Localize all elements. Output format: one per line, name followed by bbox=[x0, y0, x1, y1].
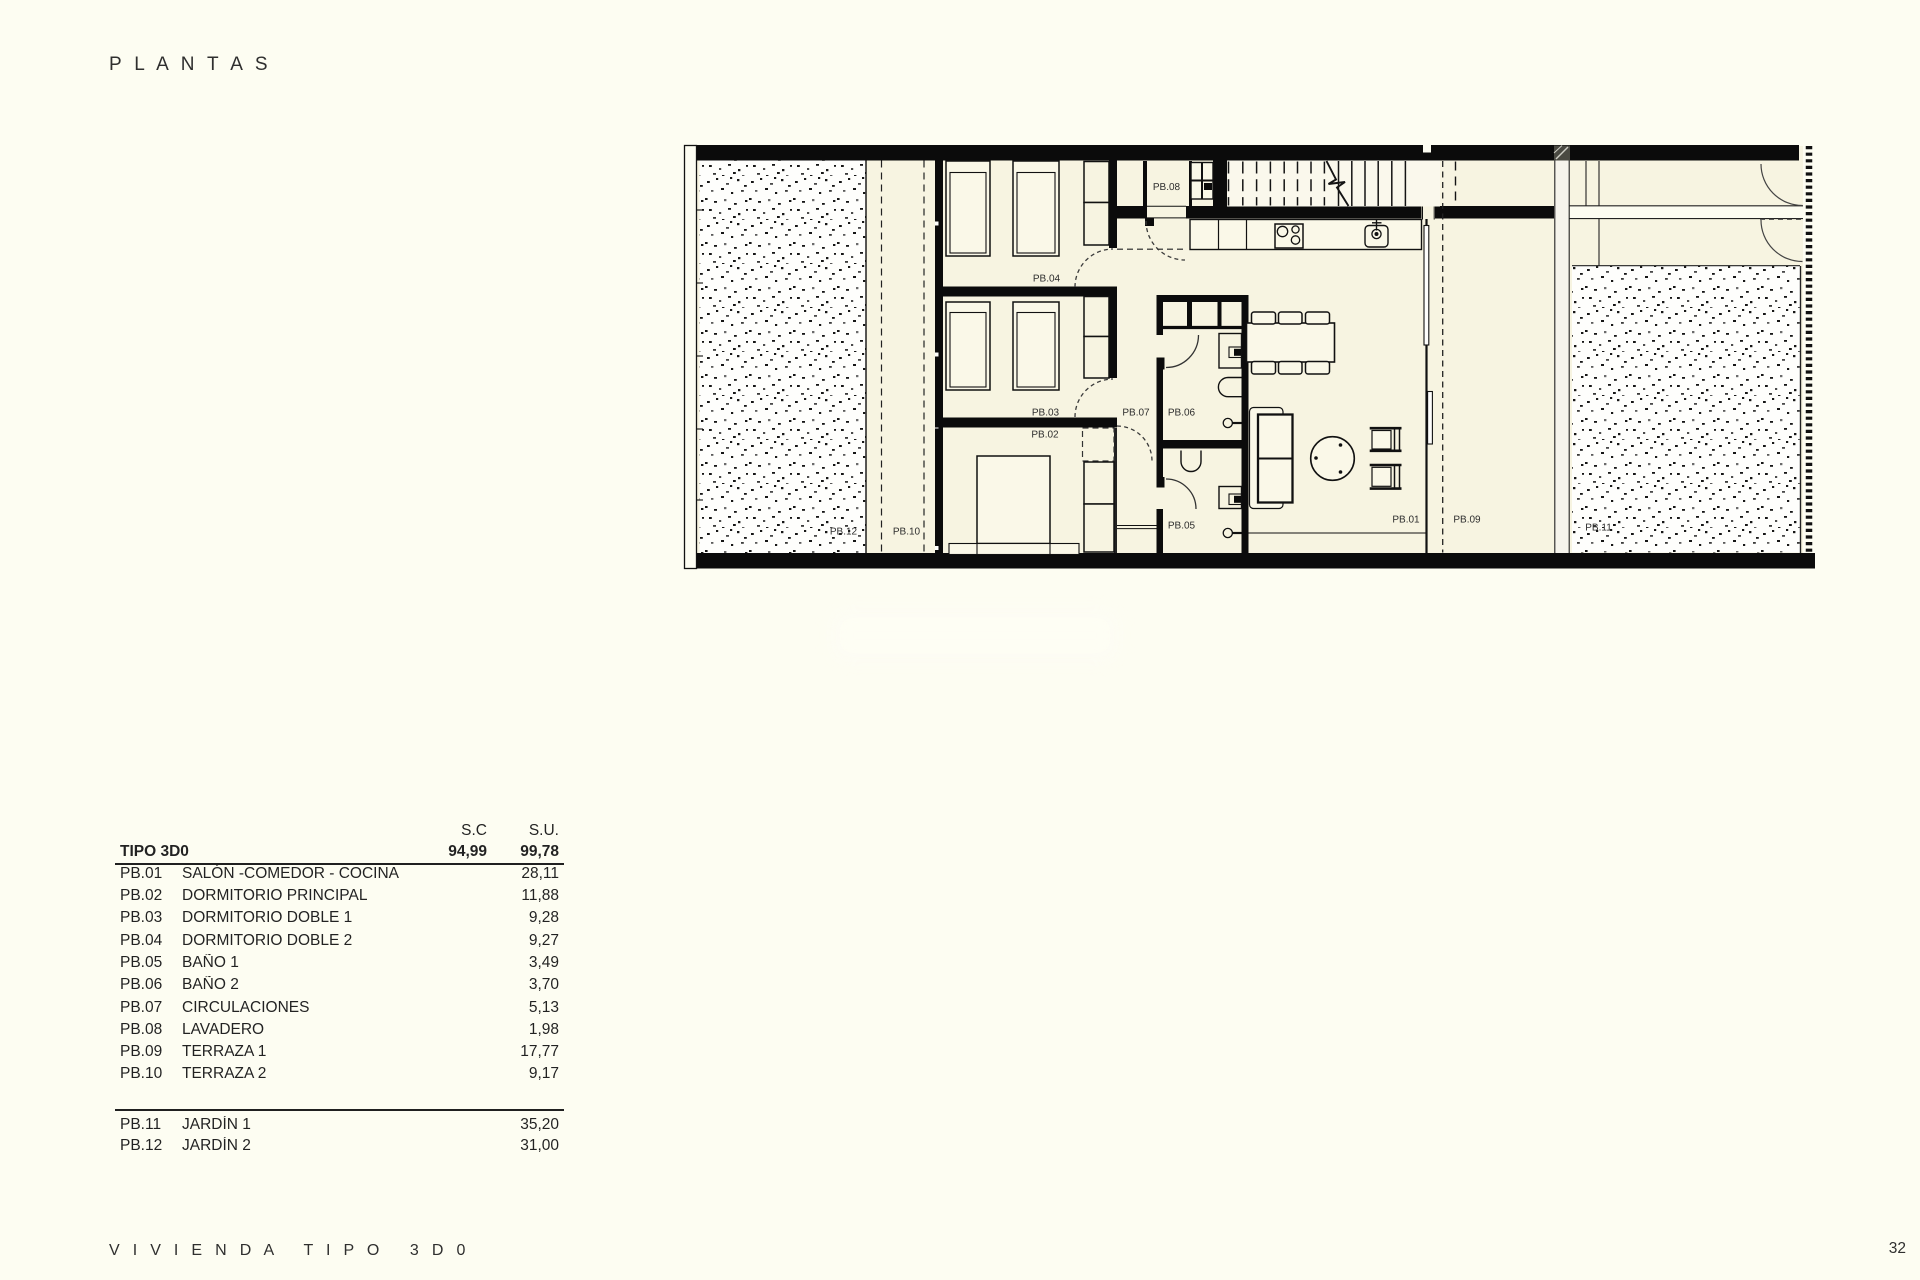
svg-text:PB.02: PB.02 bbox=[1031, 430, 1059, 441]
svg-text:PB.05: PB.05 bbox=[1168, 521, 1196, 532]
svg-text:PB.07: PB.07 bbox=[1122, 408, 1150, 419]
svg-text:PB.12: PB.12 bbox=[830, 527, 858, 538]
svg-text:PB.04: PB.04 bbox=[1033, 274, 1061, 285]
svg-text:PB.10: PB.10 bbox=[893, 527, 921, 538]
svg-text:PB.01: PB.01 bbox=[1392, 515, 1420, 526]
svg-text:PB.08: PB.08 bbox=[1153, 182, 1181, 193]
svg-text:PB.06: PB.06 bbox=[1168, 408, 1196, 419]
svg-text:PB.11: PB.11 bbox=[1585, 523, 1612, 534]
svg-text:PB.09: PB.09 bbox=[1453, 515, 1481, 526]
svg-text:PB.03: PB.03 bbox=[1032, 408, 1060, 419]
